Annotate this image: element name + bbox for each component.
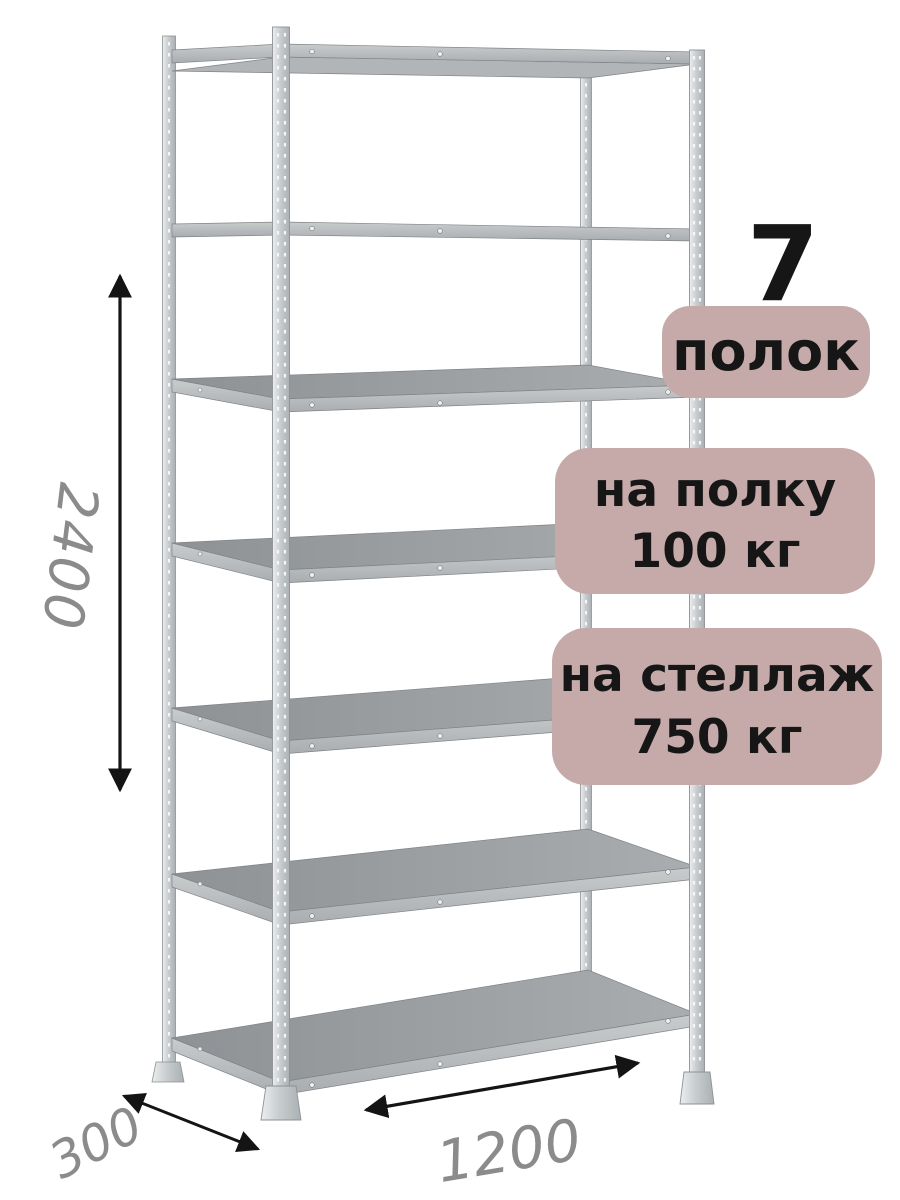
rack-shelf xyxy=(172,829,697,925)
shelving-rack-illustration xyxy=(0,0,900,1200)
badge-per-shelf-load-line1: на полку xyxy=(594,460,836,521)
rack-shelf xyxy=(172,222,697,241)
badge-per-rack-load-line2: 750 кг xyxy=(632,707,803,768)
rack-post-back-left xyxy=(152,36,184,1082)
badge-per-rack-load: на стеллаж 750 кг xyxy=(552,628,882,785)
badge-per-shelf-load: на полку 100 кг xyxy=(555,448,875,594)
product-image: 7 полок на полку 100 кг на стеллаж 750 к… xyxy=(0,0,900,1200)
rack-shelf xyxy=(172,970,697,1095)
badge-per-rack-load-line1: на стеллаж xyxy=(560,645,875,706)
badge-per-shelf-load-line2: 100 кг xyxy=(630,521,801,582)
dimension-height-label: 2400 xyxy=(34,480,107,634)
badge-shelf-count: полок xyxy=(662,306,870,398)
shelf-count-number: 7 xyxy=(747,212,819,316)
rack-shelf xyxy=(172,44,697,78)
rack-shelf xyxy=(172,365,697,412)
badge-shelf-count-label: полок xyxy=(672,317,860,387)
